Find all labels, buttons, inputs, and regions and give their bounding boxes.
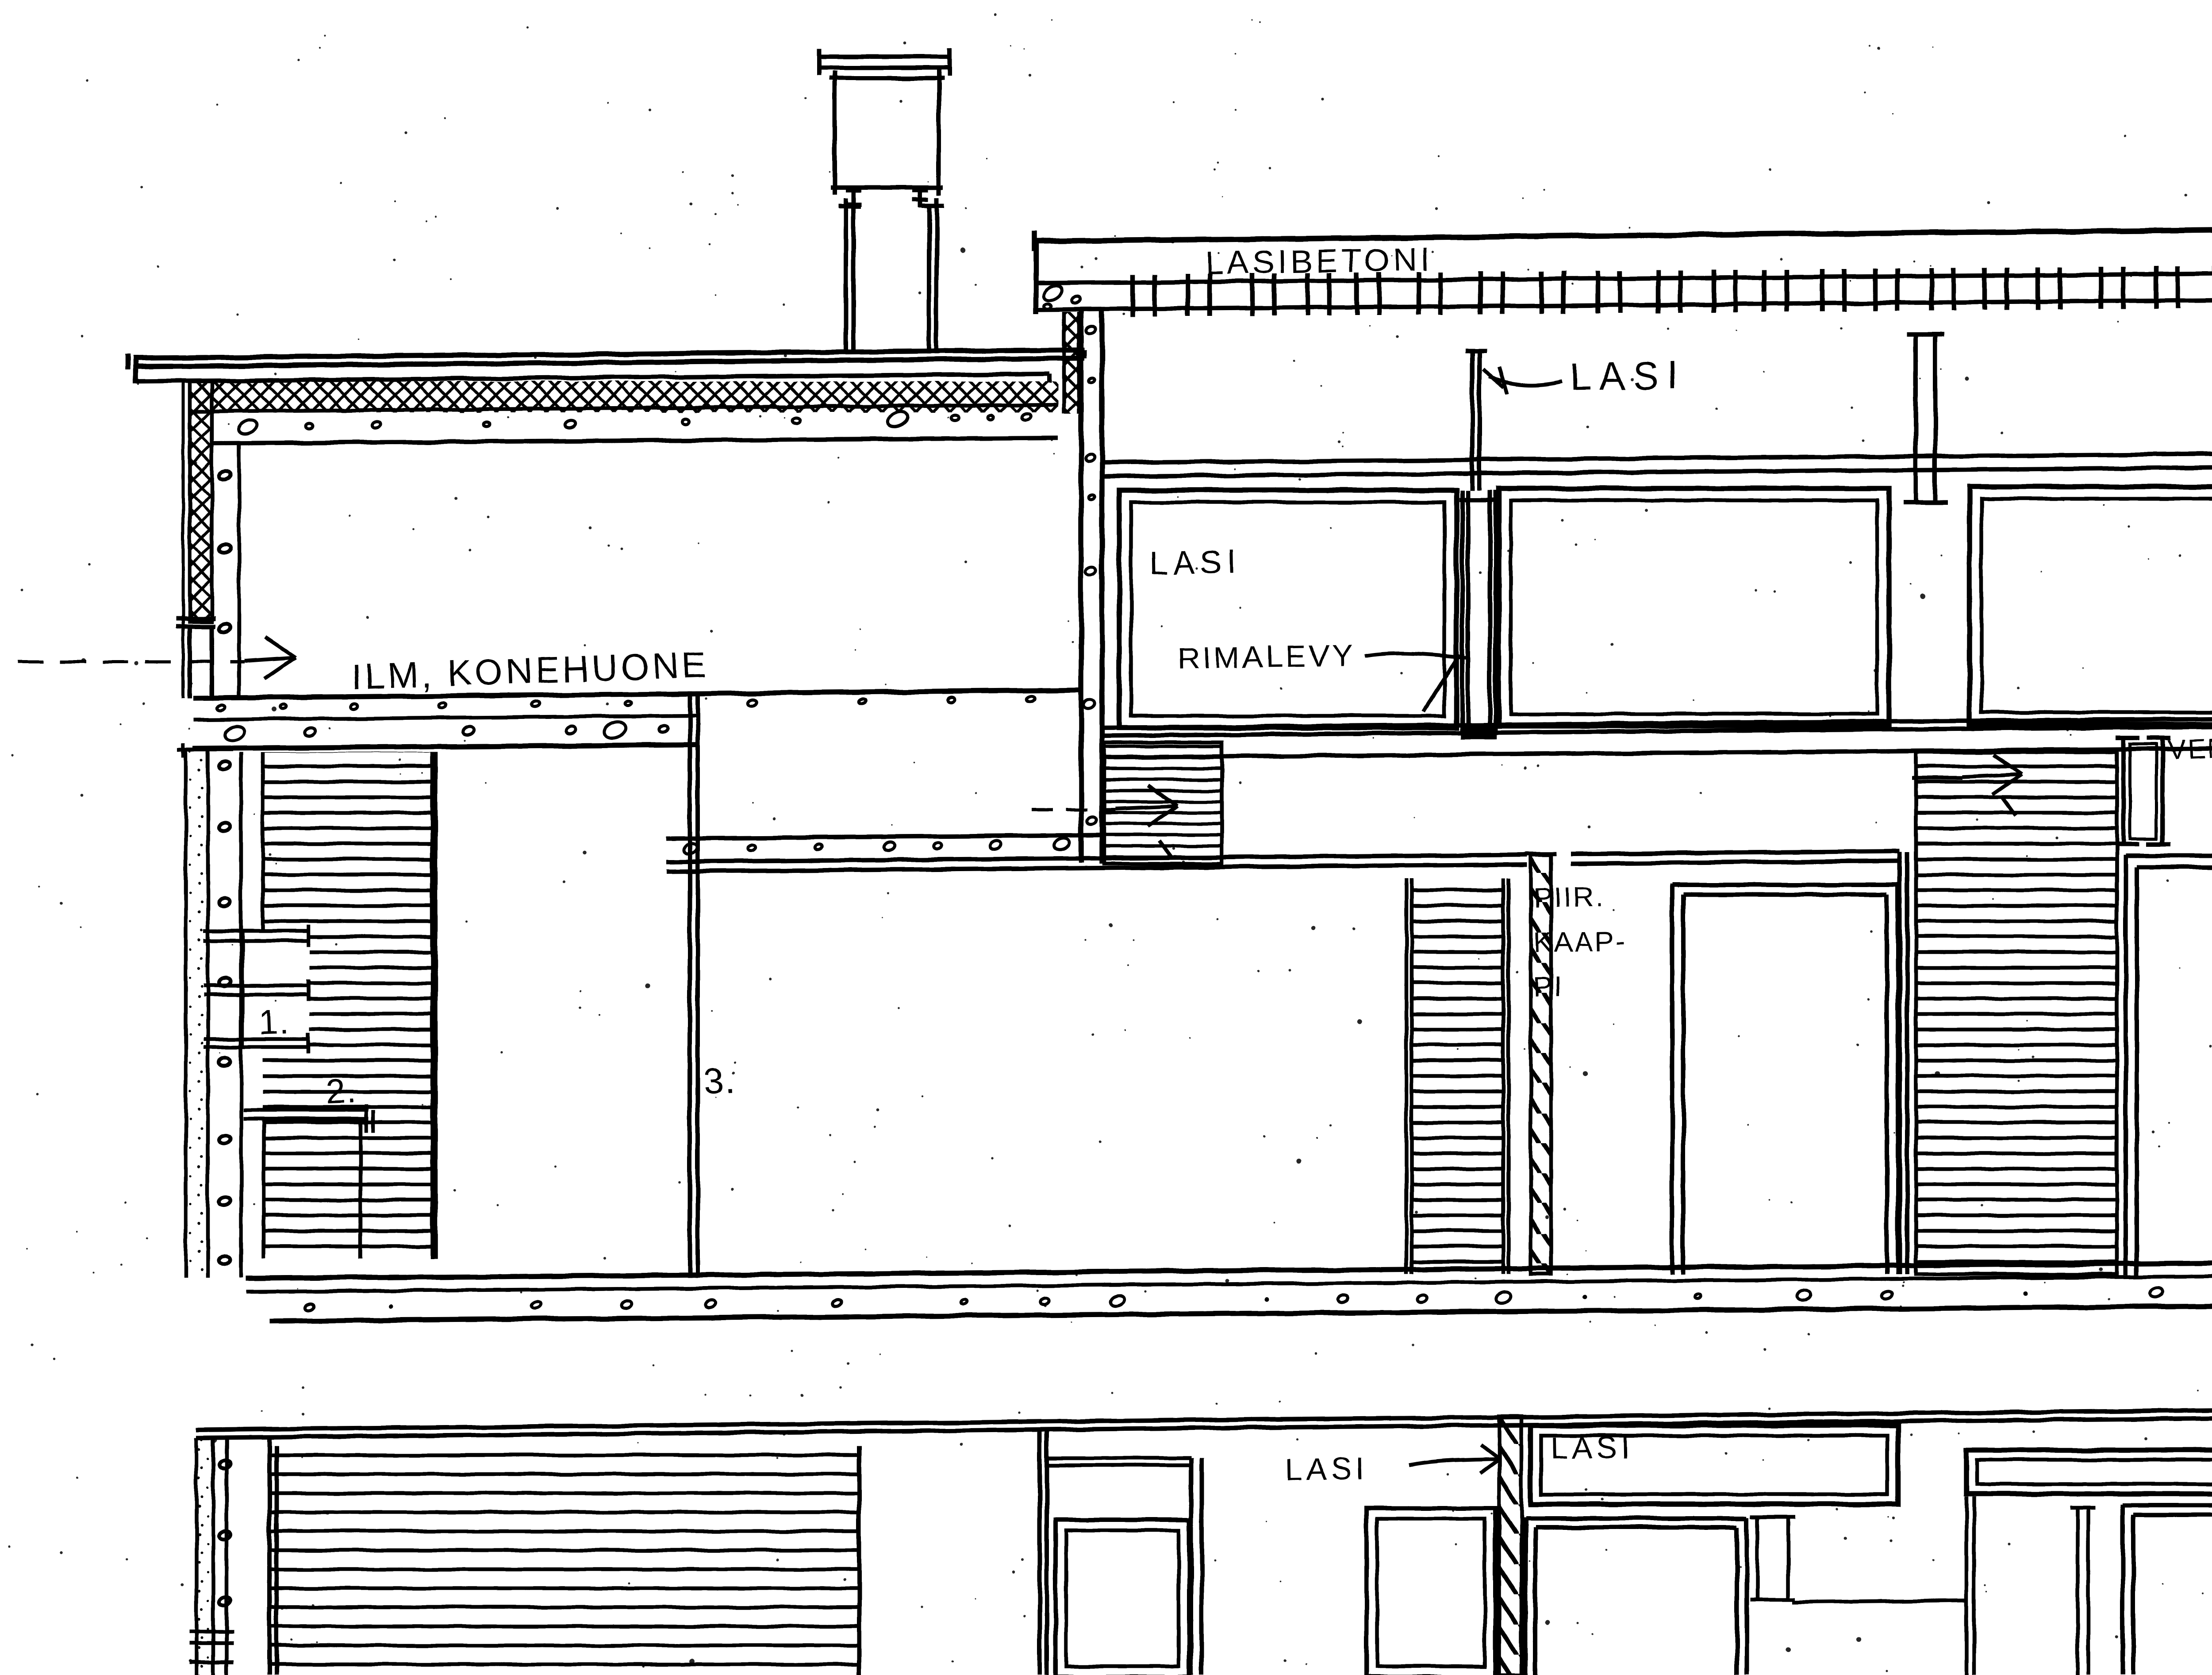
svg-text:LASI: LASI — [1550, 1430, 1634, 1466]
svg-text:VENTTIILI: VENTTIILI — [2167, 730, 2212, 765]
svg-text:LASI: LASI — [1149, 543, 1242, 581]
svg-text:PIIR.: PIIR. — [1533, 881, 1605, 914]
svg-text:PI: PI — [1533, 970, 1564, 1003]
svg-text:1.: 1. — [258, 1002, 290, 1042]
svg-text:LASI: LASI — [1569, 353, 1686, 399]
svg-text:RIMALEVY: RIMALEVY — [1177, 638, 1356, 676]
svg-text:2.: 2. — [326, 1071, 357, 1111]
svg-text:LASIBETONI: LASIBETONI — [1205, 241, 1433, 281]
svg-text:KAAP-: KAAP- — [1533, 925, 1627, 958]
svg-text:LASI: LASI — [1285, 1451, 1368, 1487]
svg-text:3.: 3. — [703, 1060, 737, 1102]
